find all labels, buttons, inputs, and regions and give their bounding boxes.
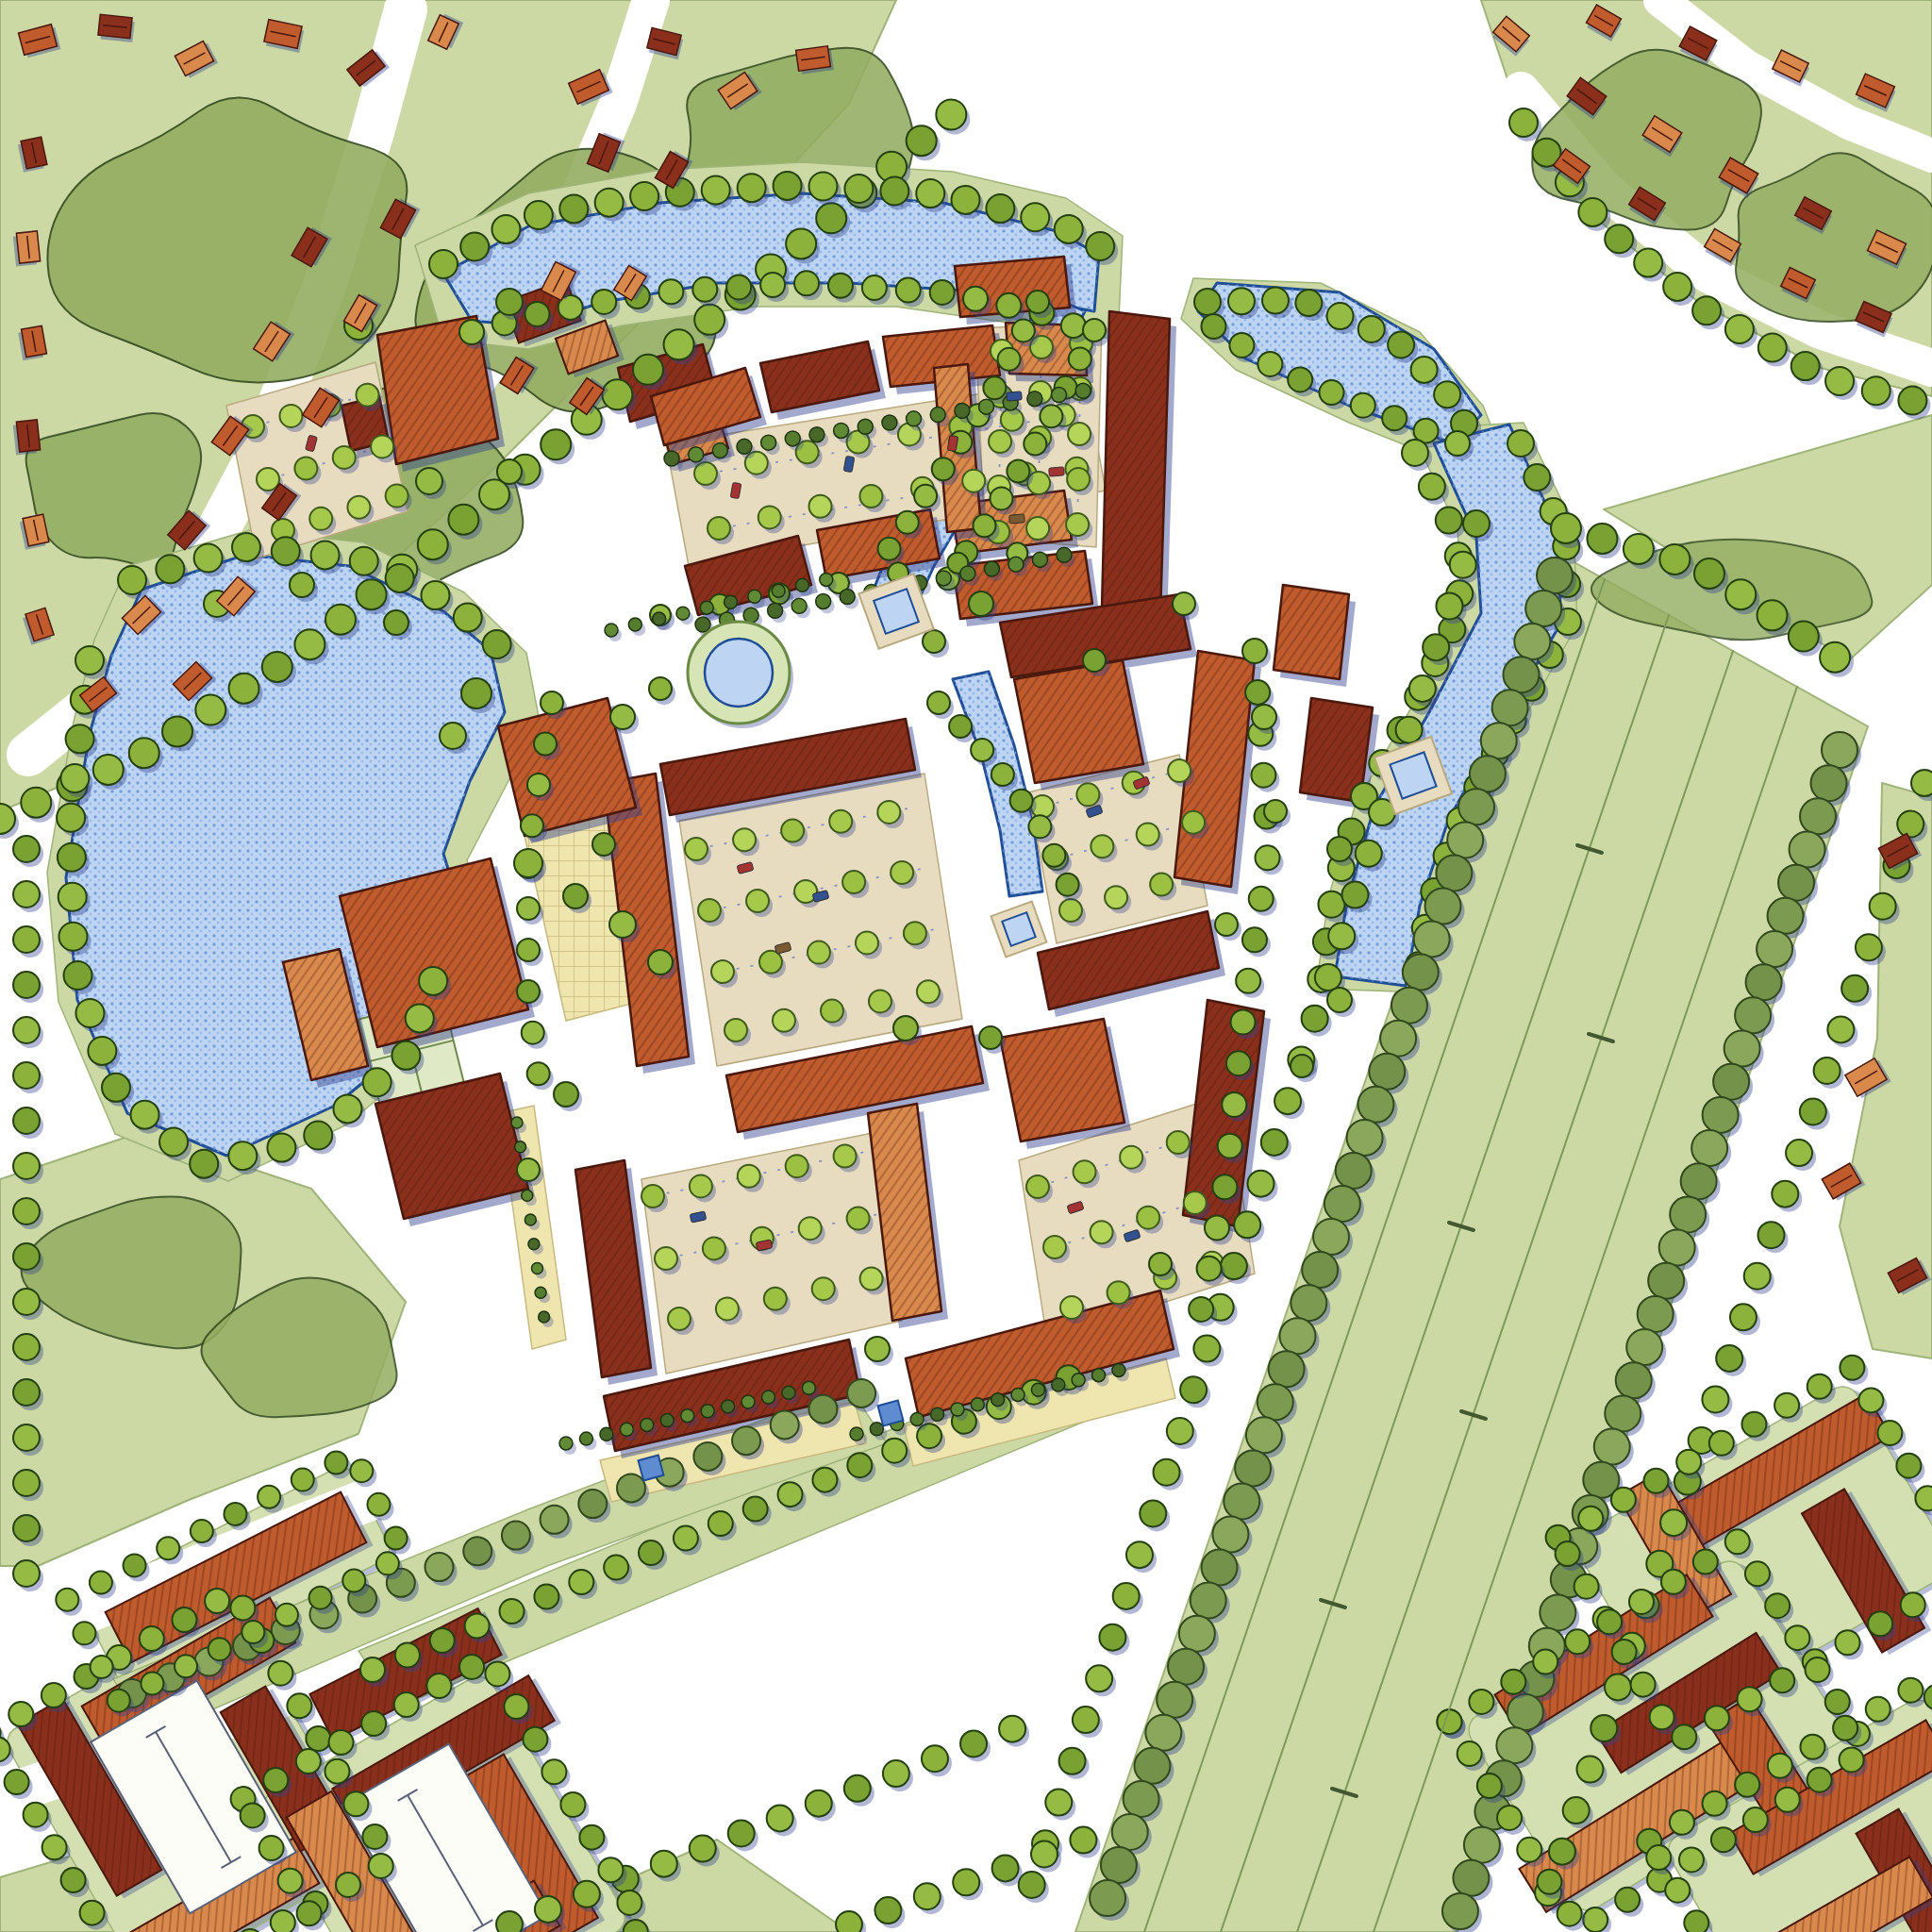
site-plan-svg <box>0 0 1932 1932</box>
master-plan-illustration <box>0 0 1932 1932</box>
